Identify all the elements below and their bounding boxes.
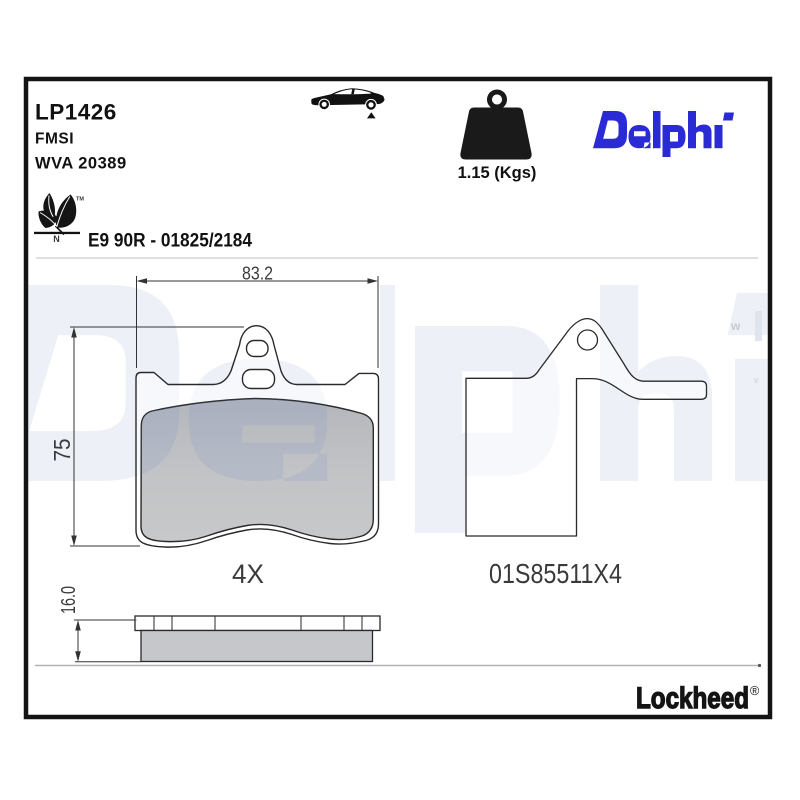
svg-text:E9 90R - 01825/2184: E9 90R - 01825/2184 — [88, 231, 252, 252]
svg-text:®: ® — [750, 684, 760, 698]
svg-text:WVA 20389: WVA 20389 — [35, 155, 127, 173]
svg-text:w: w — [730, 319, 741, 333]
svg-text:Lockheed: Lockheed — [636, 682, 749, 715]
svg-text:4X: 4X — [232, 559, 264, 589]
svg-text:75: 75 — [49, 439, 75, 462]
svg-text:FMSI: FMSI — [35, 131, 74, 148]
svg-text:N: N — [53, 234, 60, 244]
svg-text:v: v — [754, 375, 759, 385]
svg-text:83.2: 83.2 — [242, 263, 273, 284]
svg-text:LP1426: LP1426 — [35, 100, 117, 125]
svg-text:01S85511X4: 01S85511X4 — [489, 558, 622, 589]
svg-text:1.15 (Kgs): 1.15 (Kgs) — [458, 164, 537, 182]
svg-text:TM: TM — [76, 197, 84, 203]
svg-text:16.0: 16.0 — [58, 586, 80, 614]
